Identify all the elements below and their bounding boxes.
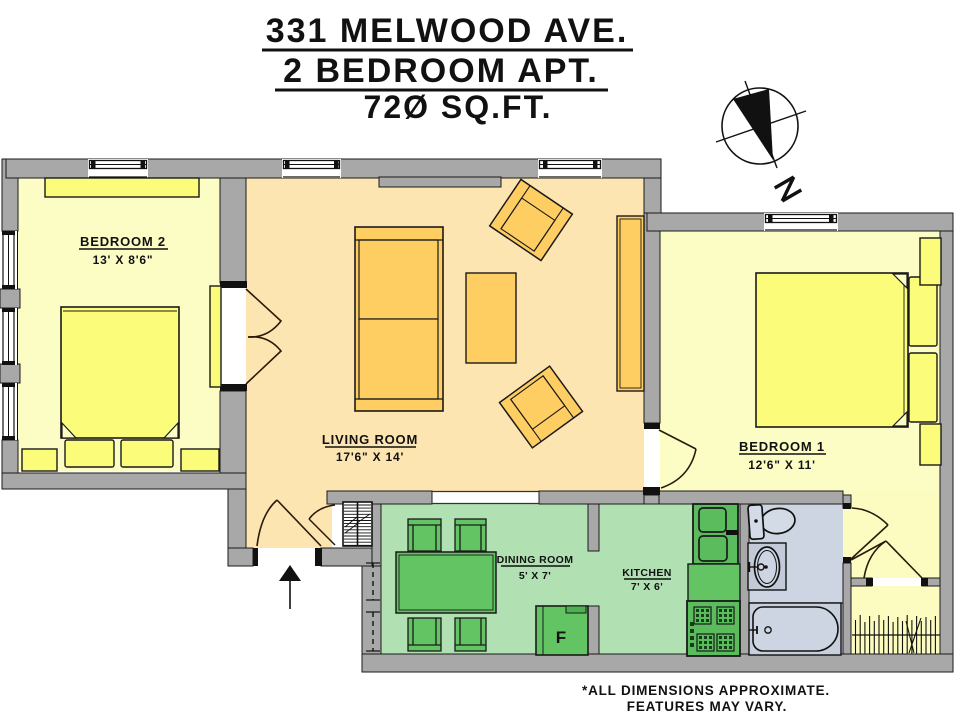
svg-text:12'6" X 11': 12'6" X 11' xyxy=(748,458,816,472)
svg-text:331 MELWOOD AVE.: 331 MELWOOD AVE. xyxy=(266,12,629,50)
svg-text:17'6" X 14': 17'6" X 14' xyxy=(336,450,404,464)
svg-text:5' X 7': 5' X 7' xyxy=(519,570,551,582)
svg-text:F: F xyxy=(556,628,566,647)
svg-text:KITCHEN: KITCHEN xyxy=(622,567,671,579)
svg-text:LIVING ROOM: LIVING ROOM xyxy=(322,432,418,447)
svg-text:BEDROOM 1: BEDROOM 1 xyxy=(739,439,825,454)
svg-text:7' X 6': 7' X 6' xyxy=(631,581,663,593)
svg-text:FEATURES MAY VARY.: FEATURES MAY VARY. xyxy=(627,699,787,714)
svg-text:2 BEDROOM APT.: 2 BEDROOM APT. xyxy=(283,52,599,90)
svg-text:BEDROOM 2: BEDROOM 2 xyxy=(80,234,166,249)
svg-text:*ALL DIMENSIONS APPROXIMATE.: *ALL DIMENSIONS APPROXIMATE. xyxy=(582,683,830,698)
svg-text:72Ø SQ.FT.: 72Ø SQ.FT. xyxy=(364,89,553,125)
svg-text:DINING ROOM: DINING ROOM xyxy=(497,554,574,566)
svg-text:13' X 8'6": 13' X 8'6" xyxy=(93,253,154,267)
